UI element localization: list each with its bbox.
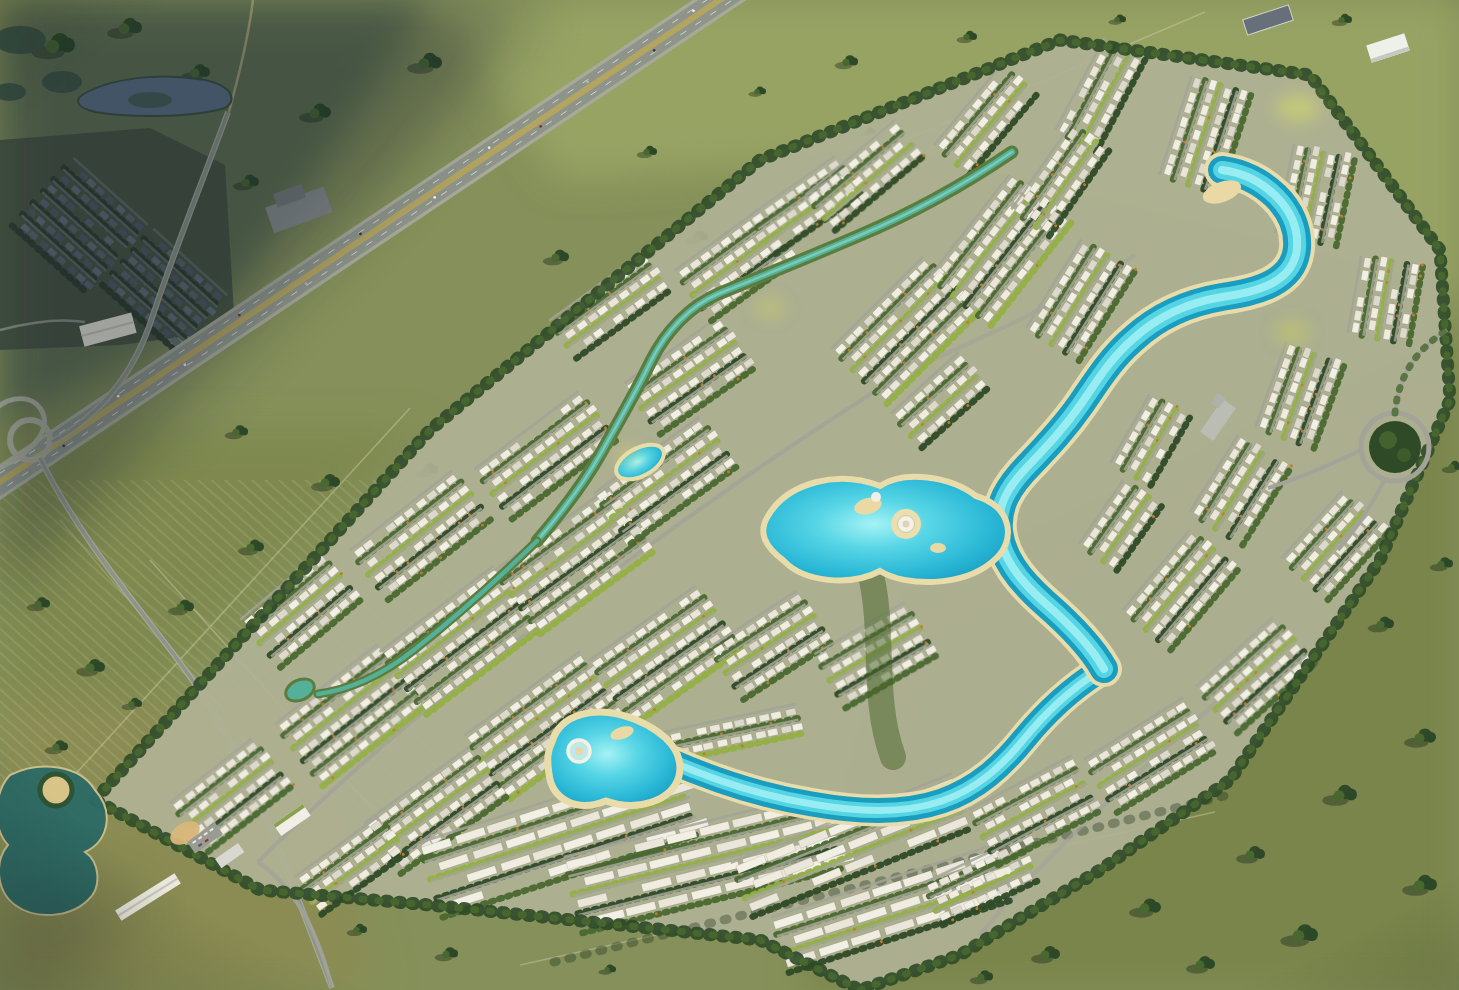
- aerial-masterplan-render: [0, 0, 1459, 990]
- vignette: [0, 0, 1459, 990]
